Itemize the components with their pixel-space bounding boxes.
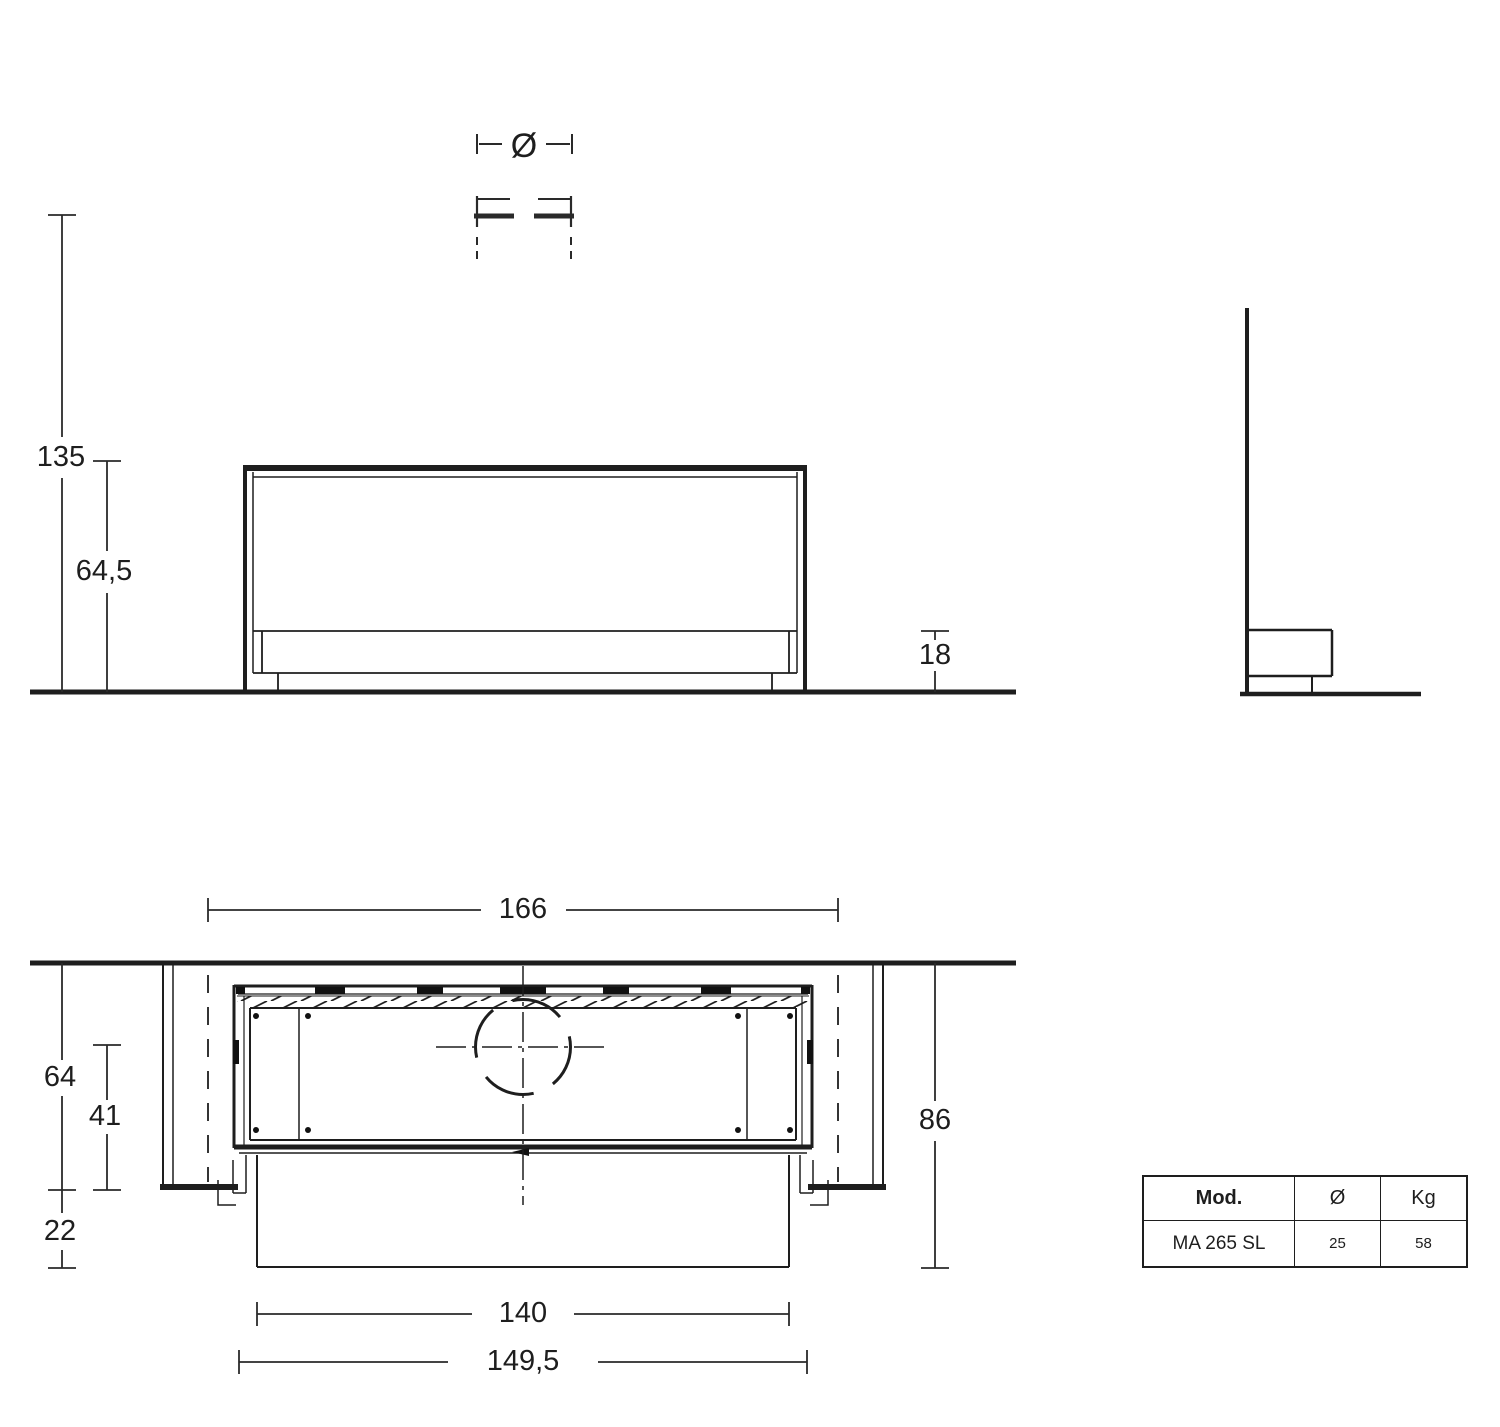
- spec-value-weight: 58: [1381, 1221, 1466, 1266]
- label-overall-width: 166: [499, 893, 547, 925]
- technical-drawing-page: Ø: [0, 0, 1500, 1427]
- plan-view: [30, 963, 1016, 1267]
- label-niche-depth: 64: [44, 1061, 76, 1093]
- latch-left: [233, 1040, 239, 1064]
- diameter-symbol-label: Ø: [511, 127, 537, 165]
- side-view: [1240, 308, 1421, 694]
- spec-header-weight: Kg: [1381, 1177, 1466, 1221]
- latch-right: [807, 1040, 813, 1064]
- dimension-labels: 135 64,5 18 166 64 41 22 86 140 149,5: [37, 441, 951, 1377]
- label-front-width: 140: [499, 1297, 547, 1329]
- spec-value-diameter: 25: [1295, 1221, 1381, 1266]
- front-view: [30, 466, 1016, 692]
- spec-table: Mod. Ø Kg MA 265 SL 25 58: [1142, 1175, 1468, 1268]
- spec-header-diameter: Ø: [1295, 1177, 1381, 1221]
- spec-header-model: Mod.: [1144, 1177, 1295, 1221]
- spec-value-model: MA 265 SL: [1144, 1221, 1295, 1266]
- dimension-lines: [48, 215, 949, 1374]
- label-firebox-depth: 41: [89, 1100, 121, 1132]
- label-plinth-height: 18: [919, 639, 951, 671]
- label-total-height: 135: [37, 441, 85, 473]
- label-base-width: 149,5: [487, 1345, 560, 1377]
- label-firebox-height: 64,5: [76, 555, 132, 587]
- label-overall-depth: 86: [919, 1104, 951, 1136]
- label-front-projection: 22: [44, 1215, 76, 1247]
